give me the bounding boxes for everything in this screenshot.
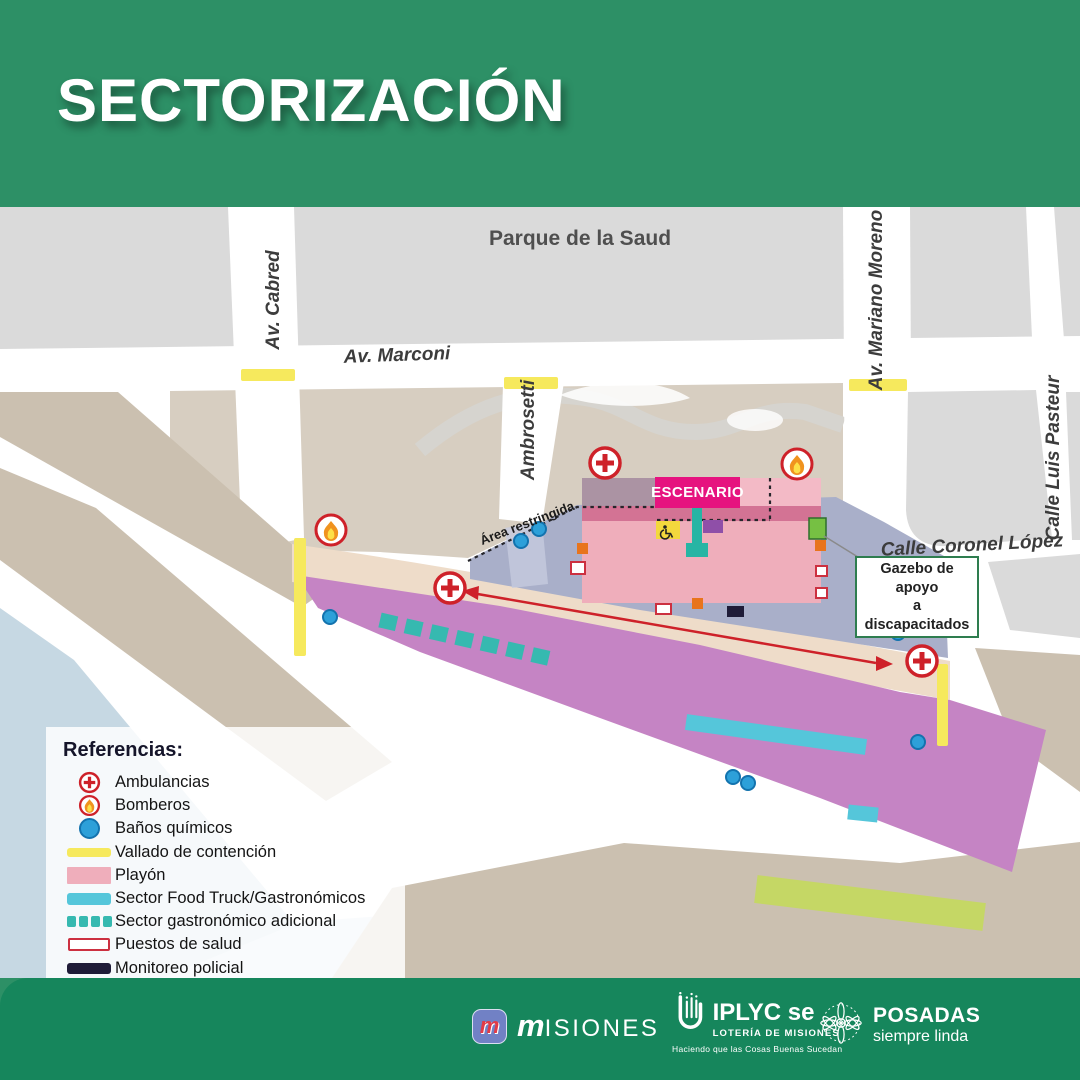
toilet-8 xyxy=(741,776,755,790)
fire-icon xyxy=(63,794,115,817)
misiones-badge-letter: m xyxy=(480,1015,500,1037)
health-post-1 xyxy=(571,562,585,574)
legend-label: Sector Food Truck/Gastronómicos xyxy=(115,889,365,908)
ambulance-icon xyxy=(63,771,115,794)
legend-item-banos: Baños químicos xyxy=(63,817,405,840)
extra-gastro-swatch xyxy=(63,916,115,927)
iplyc-tagline: Haciendo que las Cosas Buenas Sucedan xyxy=(672,1044,842,1054)
hydration-2 xyxy=(815,540,826,551)
containment-fence-swatch xyxy=(63,848,115,857)
misiones-wordmark: m ISIONES xyxy=(517,1008,659,1044)
legend-item-bomberos: Bomberos xyxy=(63,794,405,817)
ambulance-icon xyxy=(590,448,620,478)
gazebo-callout-line2: a discapacitados xyxy=(859,597,975,634)
label-av-mariano-moreno: Av. Mariano Moreno xyxy=(866,210,888,391)
hydration-1 xyxy=(577,543,588,554)
posadas-flower-icon xyxy=(818,1000,864,1051)
fence-cabred xyxy=(241,369,295,381)
fire-icon xyxy=(782,449,812,479)
hydration-3 xyxy=(692,598,703,609)
legend-item-vallado: Vallado de contención xyxy=(63,841,405,864)
legend-heading: Referencias: xyxy=(63,739,405,762)
health-post-2 xyxy=(816,566,827,576)
label-av-marconi: Av. Marconi xyxy=(343,343,450,369)
legend-item-monitoreo: Monitoreo policial xyxy=(63,957,405,980)
iplyc-logo: IPLYC se LOTERÍA DE MISIONES Haciendo qu… xyxy=(672,992,842,1054)
posadas-name: POSADAS xyxy=(873,1005,980,1027)
health-post-4 xyxy=(656,604,671,614)
misiones-wordmark-rest: ISIONES xyxy=(545,1015,660,1043)
police-monitor-post xyxy=(727,606,744,617)
legend-item-gastro-adicional: Sector gastronómico adicional xyxy=(63,910,405,933)
health-post-3 xyxy=(816,588,827,598)
posadas-tagline: siempre linda xyxy=(873,1028,980,1046)
legend-label: Playón xyxy=(115,866,165,885)
stage-side-booth xyxy=(703,520,723,533)
legend-item-foodtruck: Sector Food Truck/Gastronómicos xyxy=(63,887,405,910)
page-title: SECTORIZACIÓN xyxy=(57,66,566,135)
toilet-6 xyxy=(911,735,925,749)
misiones-badge-icon: m xyxy=(472,1009,507,1044)
chemical-toilet-icon xyxy=(63,818,115,839)
food-truck-strip-2 xyxy=(847,804,878,822)
legend-label: Ambulancias xyxy=(115,773,209,792)
label-calle-luis-pasteur: Calle Luis Pasteur xyxy=(1043,376,1065,541)
police-monitor-swatch xyxy=(63,963,115,974)
esplanade-swatch xyxy=(63,867,115,884)
accessible-platform xyxy=(656,521,680,539)
toilet-7 xyxy=(726,770,740,784)
toilet-1 xyxy=(514,534,528,548)
fence-west xyxy=(294,538,306,656)
esplanade-band-pink xyxy=(737,478,821,506)
sectorization-poster: { "title": "SECTORIZACIÓN", "map": { "st… xyxy=(0,0,1080,1080)
iplyc-hand-icon xyxy=(675,992,707,1039)
gazebo-callout: Gazebo de apoyo a discapacitados xyxy=(855,556,979,638)
misiones-logo: m m ISIONES xyxy=(472,1008,659,1044)
misiones-wordmark-initial: m xyxy=(517,1008,545,1044)
label-ambrosetti: Ambrosetti xyxy=(518,380,540,480)
legend-item-ambulancias: Ambulancias xyxy=(63,771,405,794)
legend-item-puestos-salud: Puestos de salud xyxy=(63,933,405,956)
legend-label: Puestos de salud xyxy=(115,935,242,954)
legend-label: Bomberos xyxy=(115,796,190,815)
food-truck-swatch xyxy=(63,893,115,905)
block-moreno-pasteur xyxy=(906,390,1052,546)
label-parque-de-la-saud: Parque de la Saud xyxy=(489,227,671,251)
stage-runway-base xyxy=(686,543,708,557)
park-pond-2 xyxy=(727,409,783,431)
gazebo-callout-line1: Gazebo de apoyo xyxy=(859,560,975,597)
legend-label: Monitoreo policial xyxy=(115,959,243,978)
posadas-logo: POSADAS siempre linda xyxy=(818,1000,980,1051)
stage-runway xyxy=(692,507,702,545)
health-post-swatch xyxy=(63,938,115,951)
legend-item-playon: Playón xyxy=(63,864,405,887)
toilet-3 xyxy=(323,610,337,624)
esplanade-band-mauve xyxy=(582,478,658,506)
gazebo-marker xyxy=(809,518,826,539)
label-av-cabred: Av. Cabred xyxy=(263,250,285,349)
legend-label: Baños químicos xyxy=(115,819,232,838)
fire-icon xyxy=(316,515,346,545)
stage-label: ESCENARIO xyxy=(655,477,740,508)
ambulance-icon xyxy=(435,573,465,603)
fence-east xyxy=(937,664,948,746)
legend-label: Vallado de contención xyxy=(115,843,276,862)
legend-label: Sector gastronómico adicional xyxy=(115,912,336,931)
ambulance-icon xyxy=(907,646,937,676)
